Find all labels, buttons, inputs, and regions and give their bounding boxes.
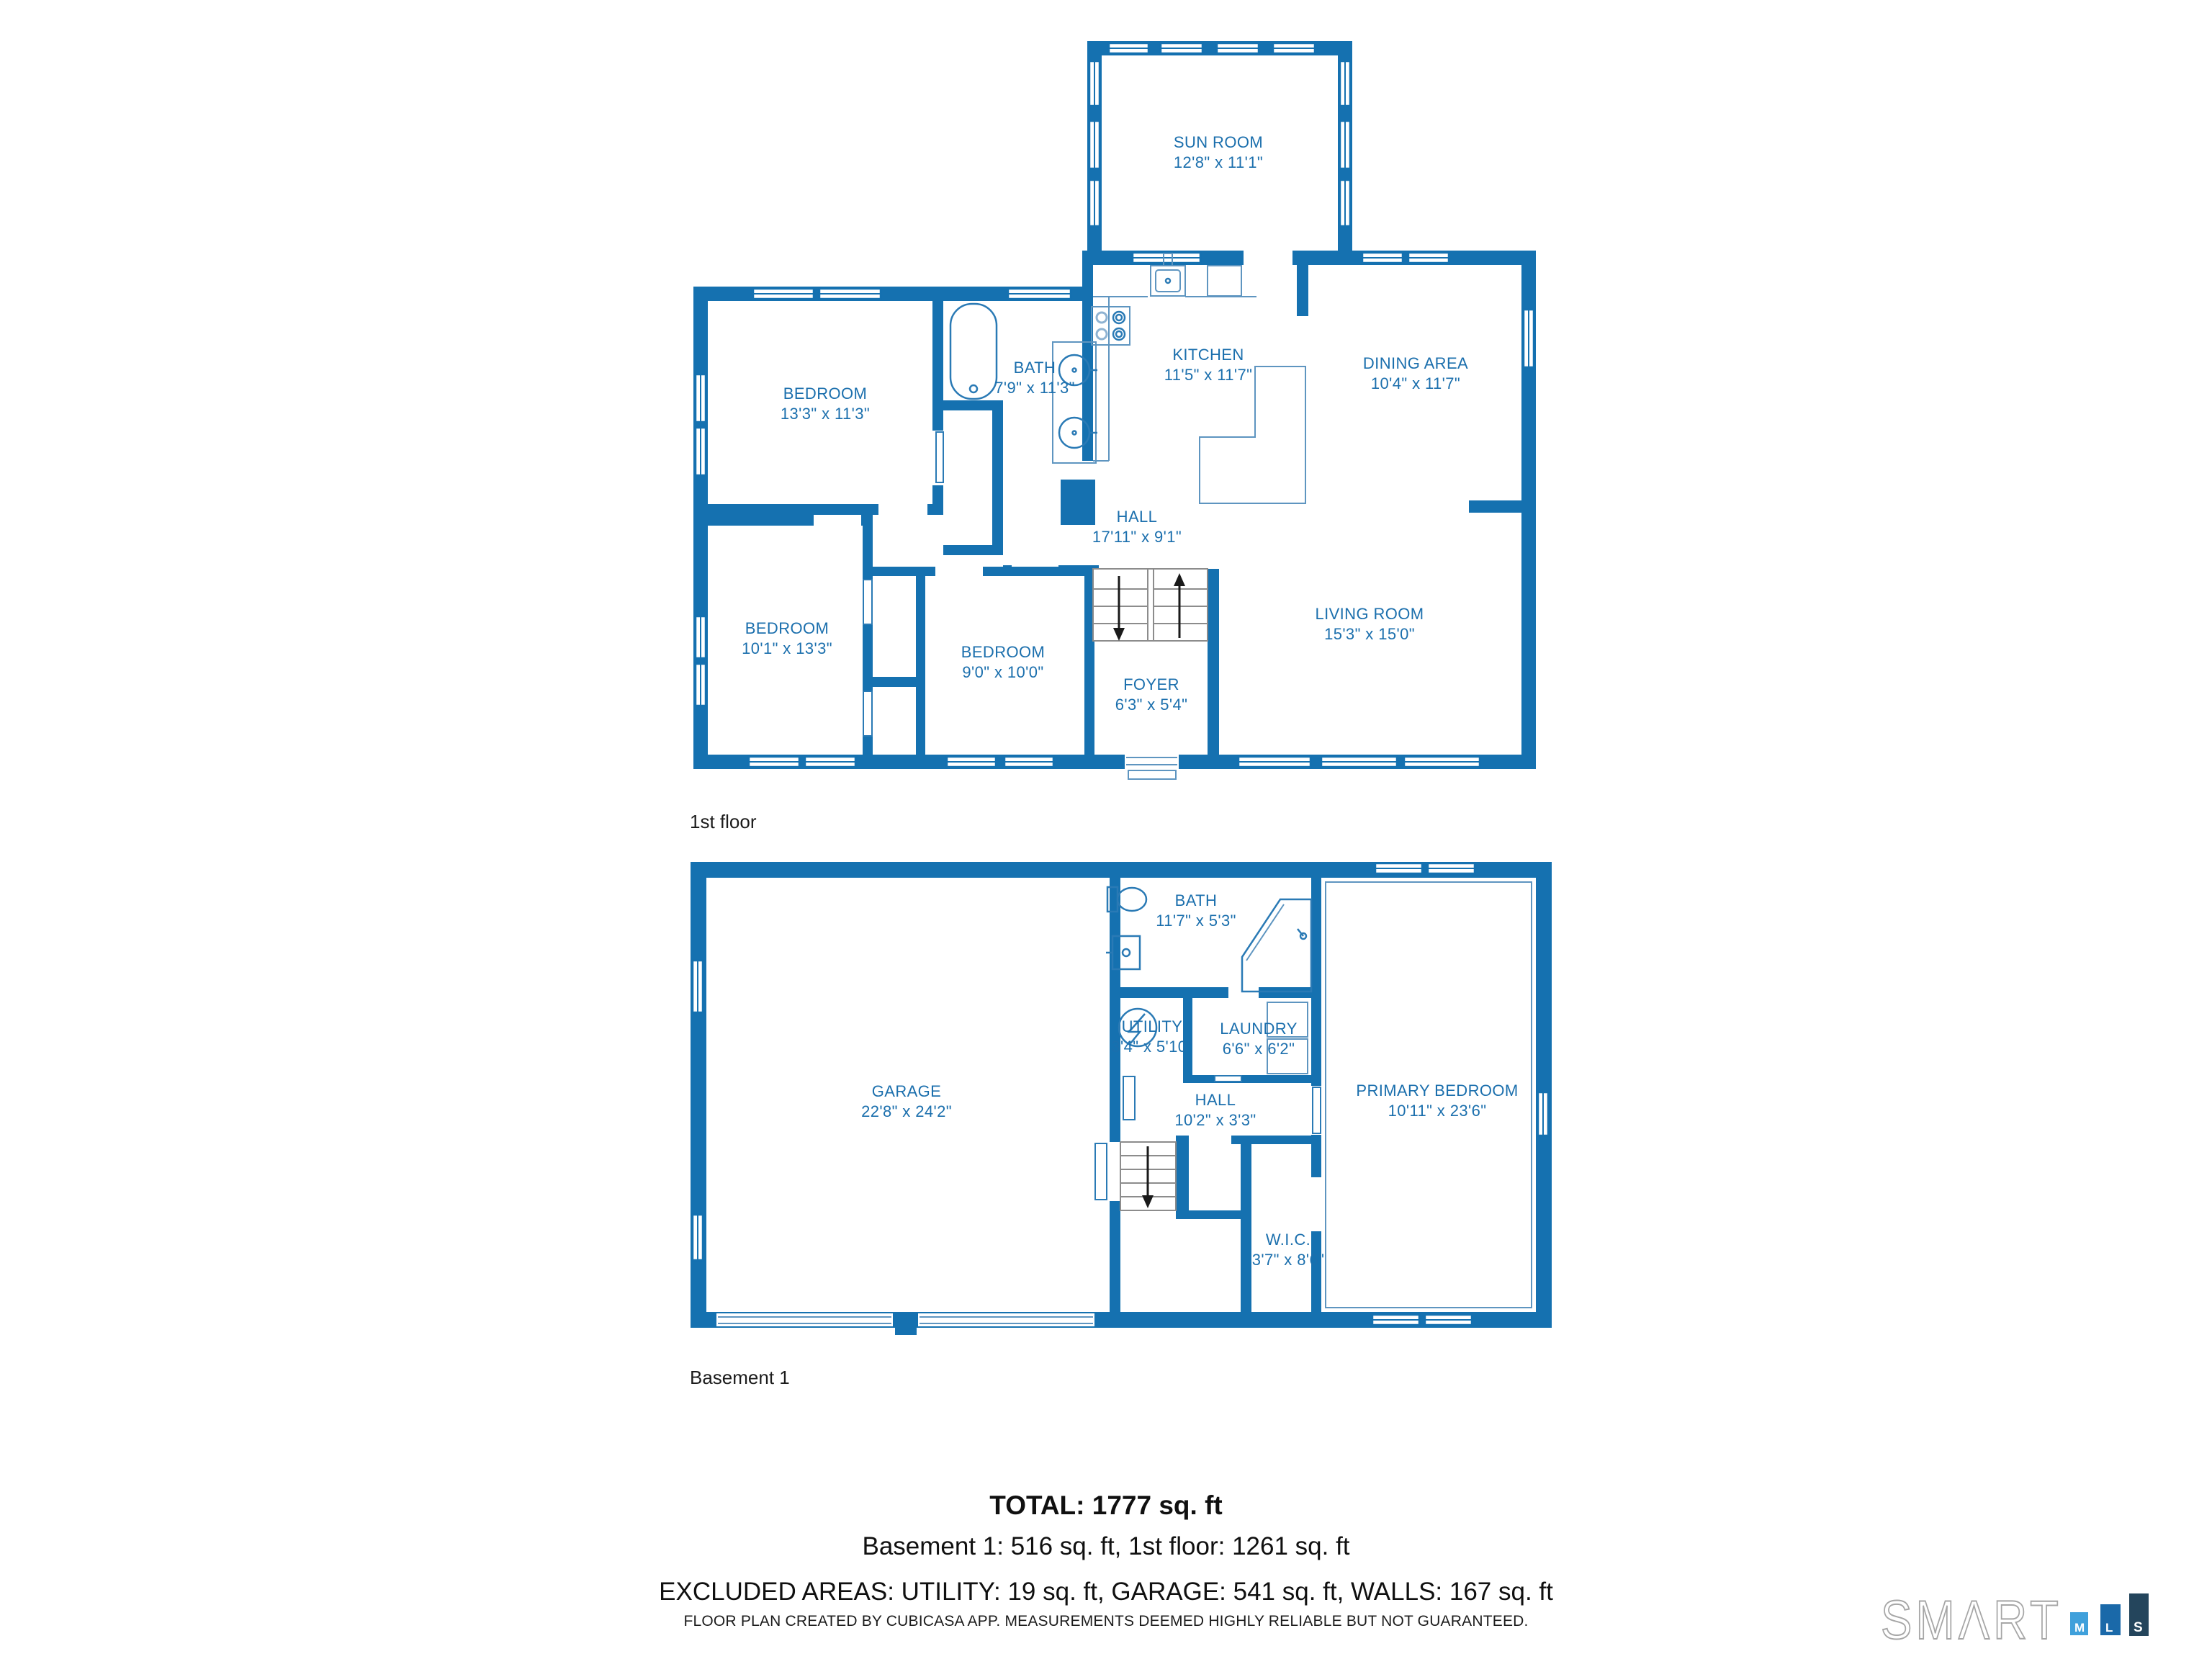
room-name: KITCHEN [1164, 345, 1253, 365]
basement-staircase-icon [1120, 1142, 1176, 1210]
room-name: LIVING ROOM [1315, 604, 1424, 624]
room-label-utility: UTILITY 3'4" x 5'10" [1111, 1017, 1192, 1057]
first-floor-staircase-icon [1093, 569, 1208, 641]
room-dims: 7'9" x 11'3" [994, 378, 1075, 398]
room-name: BEDROOM [742, 619, 832, 639]
room-name: W.I.C. [1252, 1230, 1325, 1250]
room-name: GARAGE [861, 1082, 952, 1102]
room-dims: 9'0" x 10'0" [961, 662, 1045, 683]
room-label-garage: GARAGE 22'8" x 24'2" [861, 1082, 952, 1122]
room-dims: 22'8" x 24'2" [861, 1102, 952, 1122]
room-label-living-room: LIVING ROOM 15'3" x 15'0" [1315, 604, 1424, 644]
room-dims: 3'7" x 8'6" [1252, 1250, 1325, 1270]
room-dims: 11'5" x 11'7" [1164, 365, 1253, 385]
floor-plan-page: SMΛRT M L S SUN ROOM 12'8" x 11'1" BEDRO… [0, 0, 2212, 1659]
room-dims: 15'3" x 15'0" [1315, 624, 1424, 644]
room-name: HALL [1174, 1090, 1256, 1110]
room-label-kitchen: KITCHEN 11'5" x 11'7" [1164, 345, 1253, 385]
room-name: BATH [994, 358, 1075, 378]
room-label-bedroom-a: BEDROOM 13'3" x 11'3" [781, 384, 870, 424]
room-name: SUN ROOM [1174, 132, 1263, 153]
room-dims: 10'11" x 23'6" [1356, 1101, 1518, 1121]
room-dims: 3'4" x 5'10" [1111, 1037, 1192, 1057]
room-name: BEDROOM [781, 384, 870, 404]
room-dims: 6'3" x 5'4" [1115, 695, 1188, 715]
room-dims: 11'7" x 5'3" [1156, 911, 1236, 931]
excluded-areas-text: EXCLUDED AREAS: UTILITY: 19 sq. ft, GARA… [0, 1569, 2212, 1614]
room-label-foyer: FOYER 6'3" x 5'4" [1115, 675, 1188, 715]
room-name: BATH [1156, 891, 1236, 911]
stove-icon [1092, 307, 1130, 345]
room-dims: 10'1" x 13'3" [742, 639, 832, 659]
room-label-bedroom-c: BEDROOM 9'0" x 10'0" [961, 642, 1045, 683]
area-summary: TOTAL: 1777 sq. ft Basement 1: 516 sq. f… [0, 1488, 2212, 1614]
room-dims: 13'3" x 11'3" [781, 404, 870, 424]
room-name: UTILITY [1111, 1017, 1192, 1037]
basement-label: Basement 1 [690, 1367, 790, 1389]
room-name: LAUNDRY [1220, 1019, 1298, 1039]
bathtub-icon [950, 304, 997, 399]
room-name: FOYER [1115, 675, 1188, 695]
closet-door-icons [863, 432, 943, 736]
room-dims: 10'4" x 11'7" [1363, 374, 1468, 394]
room-label-bath-1: BATH 7'9" x 11'3" [994, 358, 1075, 398]
room-label-hall-2: HALL 10'2" x 3'3" [1174, 1090, 1256, 1130]
total-area-text: TOTAL: 1777 sq. ft [0, 1488, 2212, 1524]
room-dims: 6'6" x 6'2" [1220, 1039, 1298, 1059]
floor-areas-text: Basement 1: 516 sq. ft, 1st floor: 1261 … [0, 1524, 2212, 1569]
room-label-dining-area: DINING AREA 10'4" x 11'7" [1363, 354, 1468, 394]
disclaimer-text: FLOOR PLAN CREATED BY CUBICASA APP. MEAS… [0, 1613, 2212, 1630]
corner-shower-icon [1242, 899, 1311, 992]
room-label-bedroom-b: BEDROOM 10'1" x 13'3" [742, 619, 832, 659]
room-name: BEDROOM [961, 642, 1045, 662]
room-name: HALL [1092, 507, 1182, 527]
room-dims: 17'11" x 9'1" [1092, 527, 1182, 547]
room-dims: 10'2" x 3'3" [1174, 1110, 1256, 1130]
room-name: PRIMARY BEDROOM [1356, 1081, 1518, 1101]
room-label-laundry: LAUNDRY 6'6" x 6'2" [1220, 1019, 1298, 1059]
room-label-primary-bedroom: PRIMARY BEDROOM 10'11" x 23'6" [1356, 1081, 1518, 1121]
room-dims: 12'8" x 11'1" [1174, 153, 1263, 173]
room-label-sun-room: SUN ROOM 12'8" x 11'1" [1174, 132, 1263, 173]
floor-plan-canvas: SMΛRT M L S [0, 0, 2212, 1659]
room-name: DINING AREA [1363, 354, 1468, 374]
first-floor-label: 1st floor [690, 811, 757, 833]
room-label-hall-1: HALL 17'11" x 9'1" [1092, 507, 1182, 547]
room-label-bath-2: BATH 11'7" x 5'3" [1156, 891, 1236, 931]
room-label-wic: W.I.C. 3'7" x 8'6" [1252, 1230, 1325, 1270]
